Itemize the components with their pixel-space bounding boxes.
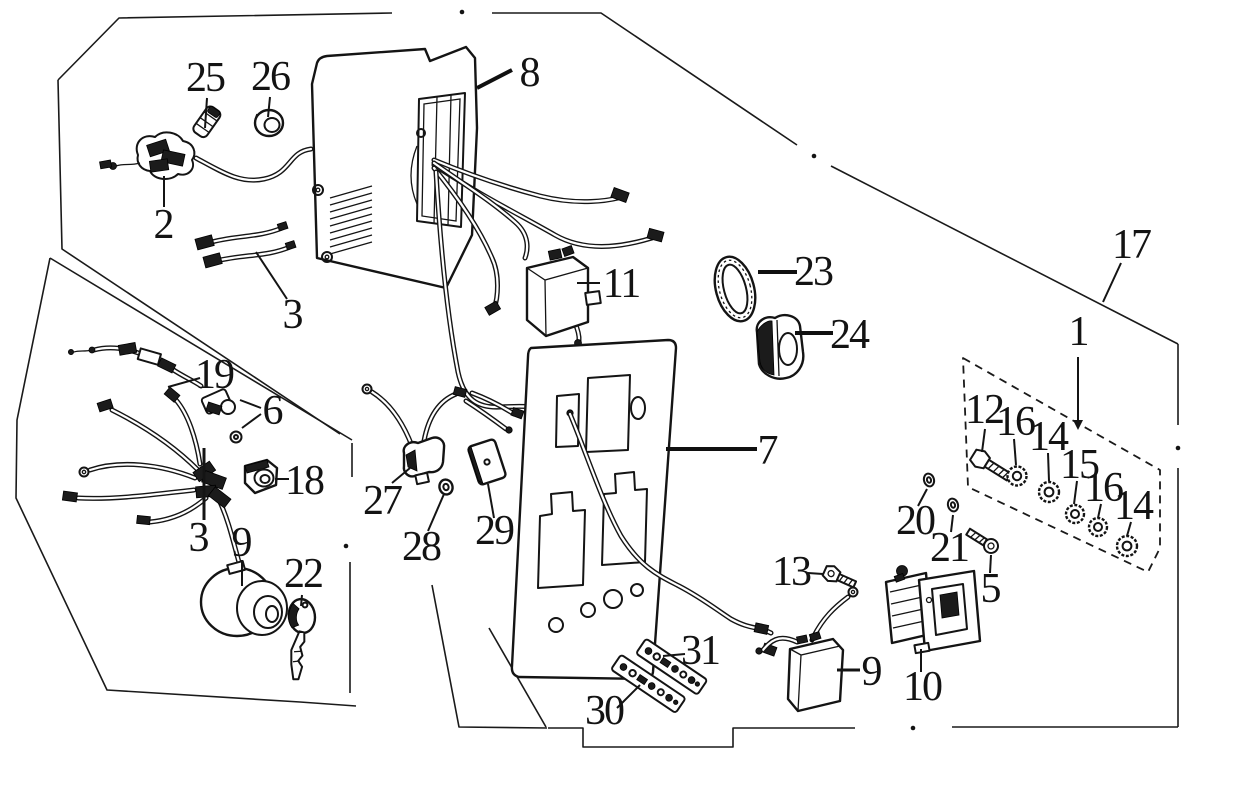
part-29-plate-drawing	[468, 439, 507, 486]
part-24-switch-drawing	[757, 315, 804, 379]
part-3-cables-drawing	[195, 222, 296, 268]
phantom-dot	[911, 726, 916, 731]
callout-label-26-3: 26	[251, 54, 290, 100]
callout-label-24-7: 24	[830, 312, 870, 358]
callout-label-18-12: 18	[285, 458, 324, 504]
exploded-parts-diagram: 2325268112324171196182728293922713313091…	[0, 0, 1239, 789]
parts-diagram-canvas: 2325268112324171196182728293922713313091…	[0, 0, 1239, 789]
callout-label-8-4: 8	[520, 50, 540, 96]
leader-6b	[242, 414, 261, 428]
callout-label-23-6: 23	[794, 249, 833, 295]
part-20-washer-drawing	[922, 472, 935, 487]
callout-label-21-32: 21	[930, 525, 968, 571]
callout-label-6-11: 6	[263, 388, 283, 434]
callout-label-19-10: 19	[195, 352, 234, 398]
phantom-dot	[1176, 446, 1181, 451]
part-23-gasket-drawing	[708, 252, 762, 326]
callout-label-30-22: 30	[585, 688, 624, 734]
part-12-bolt-drawing	[968, 447, 1013, 485]
leader-1-arrowhead	[1073, 420, 1083, 430]
callout-label-22-18: 22	[284, 551, 322, 597]
part-21-washer-drawing	[946, 497, 959, 512]
part-14-nut-drawing-b	[1117, 536, 1137, 556]
leader-17	[1103, 263, 1121, 302]
part-5-screw-drawing	[964, 526, 1000, 556]
part-10-panel-unit-drawing	[886, 566, 980, 654]
callout-label-5-33: 5	[981, 566, 1001, 612]
callout-label-13-20: 13	[772, 549, 811, 595]
phantom-dot	[344, 544, 349, 549]
leader-13	[808, 573, 823, 574]
part-3-left-harness-drawing	[62, 387, 241, 569]
callout-label-29-15: 29	[475, 508, 514, 554]
part-9-ignition-switch-drawing	[201, 561, 287, 636]
callout-label-27-13: 27	[363, 478, 402, 524]
part-18-nut-drawing	[245, 460, 277, 493]
leader-8	[477, 70, 512, 88]
callout-label-14-30: 14	[1114, 483, 1154, 529]
callout-label-25-2: 25	[186, 55, 225, 101]
part-11-relay-drawing	[527, 246, 601, 336]
callout-label-28-14: 28	[402, 524, 441, 570]
leader-6a	[240, 400, 261, 408]
callout-label-11-5: 11	[603, 261, 639, 307]
callout-label-1-9: 1	[1069, 309, 1088, 355]
part-16-flange-nut-drawing	[1008, 467, 1027, 486]
callout-label-17-8: 17	[1112, 222, 1151, 268]
part-2-harness-drawing	[100, 132, 311, 180]
part-19-cable-drawing	[68, 343, 201, 386]
callout-label-3-16: 3	[189, 515, 209, 561]
phantom-dot	[460, 10, 465, 15]
part-16-flange-nut-drawing-b	[1089, 518, 1107, 536]
part-14-nut-drawing	[1039, 482, 1059, 502]
callout-label-9-17: 9	[232, 520, 252, 566]
callout-label-2-0: 2	[154, 202, 173, 248]
callout-label-10-24: 10	[903, 664, 942, 710]
callout-label-3-1: 3	[283, 292, 303, 338]
part-28-nut-drawing	[438, 478, 454, 496]
part-7-panel-plate-drawing	[512, 340, 777, 679]
callout-label-9-23: 9	[862, 649, 882, 695]
callout-label-7-19: 7	[758, 428, 778, 474]
callout-label-31-21: 31	[681, 628, 719, 674]
phantom-dot	[812, 154, 817, 159]
part-15-nut-drawing	[1066, 505, 1084, 523]
